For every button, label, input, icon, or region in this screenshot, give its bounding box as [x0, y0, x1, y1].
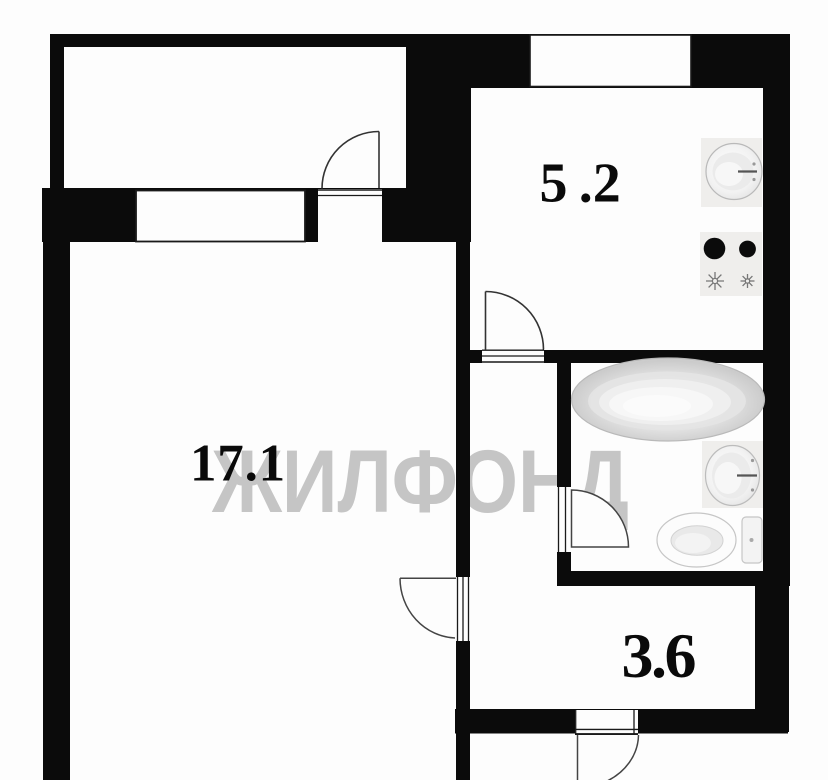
svg-text:5 .2: 5 .2 — [540, 152, 621, 214]
svg-text:17.1: 17.1 — [190, 435, 286, 493]
svg-text:3.6: 3.6 — [622, 620, 696, 691]
